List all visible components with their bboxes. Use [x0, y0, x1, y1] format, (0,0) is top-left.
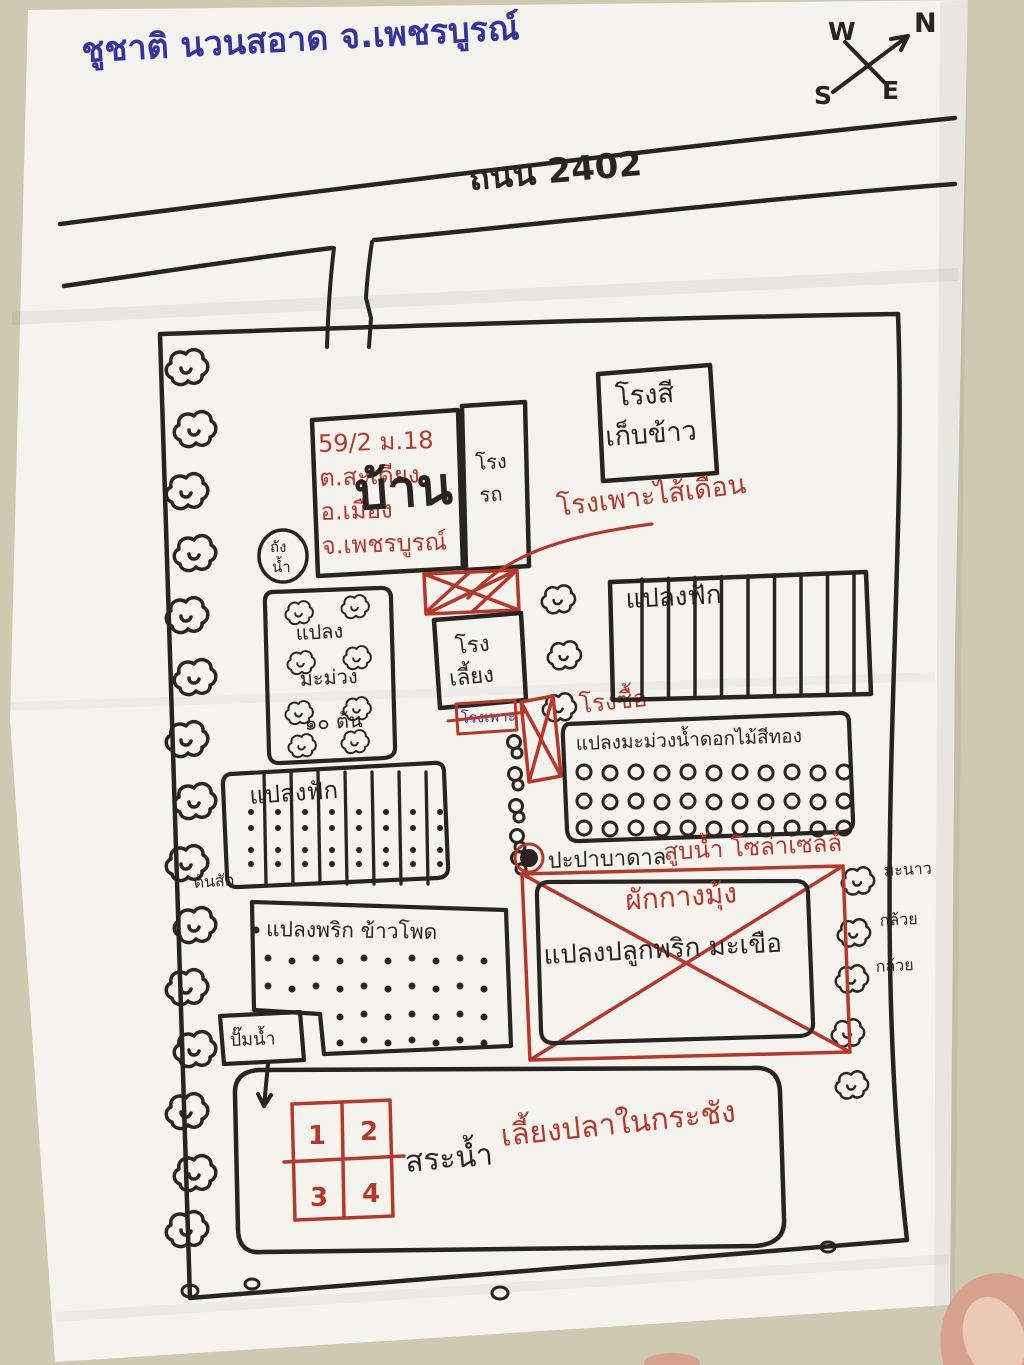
crop-dot: [385, 1040, 392, 1047]
garage-label-line1: โรง: [475, 449, 508, 475]
crop-dot: [383, 809, 389, 815]
crop-dot: [383, 861, 389, 867]
crop-dot: [437, 825, 443, 831]
crop-dot: [265, 955, 272, 962]
crop-dot: [329, 847, 335, 853]
compass-west-label: W: [828, 17, 856, 46]
crop-dot: [289, 986, 296, 993]
crop-dot: [361, 1037, 368, 1044]
crop-dot: [410, 825, 416, 831]
garage-label-line2: รถ: [479, 481, 503, 507]
crop-dot: [302, 825, 308, 831]
crop-dot: [337, 986, 344, 993]
crop-row-line: [426, 772, 428, 884]
crop-dot: [481, 1014, 488, 1021]
crop-dot: [410, 809, 416, 815]
livestock-shed-label-line1: โรง: [454, 631, 491, 660]
crop-dot: [265, 983, 272, 990]
crop-dot: [356, 847, 362, 853]
compass-east-label: E: [882, 76, 899, 105]
crop-dot: [433, 1014, 440, 1021]
house-address-line: 59/2 ม.18: [318, 426, 434, 458]
rice-mill-label-line1: โรงสี: [614, 378, 675, 413]
crop-dot: [457, 955, 464, 962]
crop-dot: [248, 847, 254, 853]
crop-dot: [329, 861, 335, 867]
crop-dot: [457, 1011, 464, 1018]
crop-dot: [313, 955, 320, 962]
crop-dot: [409, 1011, 416, 1018]
crop-dot: [275, 847, 281, 853]
crop-dot: [409, 983, 416, 990]
crop-dot: [361, 1011, 368, 1018]
chili-corn-label: แปลงพริก ข้าวโพด: [266, 917, 438, 944]
well-dot: [520, 849, 538, 867]
crop-dot: [356, 861, 362, 867]
crop-dot: [481, 1040, 488, 1047]
crop-row-line: [345, 772, 347, 884]
crop-dot: [410, 847, 416, 853]
right-orchard-label-2: กล้วย: [879, 909, 918, 930]
crop-dot: [329, 825, 335, 831]
crop-dot: [481, 958, 488, 965]
crop-dot: [253, 927, 260, 934]
pumpkin-plot-right-label: แปลงฟัก: [625, 580, 722, 615]
crop-dot: [457, 1037, 464, 1044]
cage-number-1: 1: [308, 1121, 326, 1151]
teak-row-label: ต้นสัก: [193, 870, 235, 892]
crop-dot: [302, 847, 308, 853]
crop-dot: [437, 861, 443, 867]
mango-ten-label-line2: มะม่วง: [299, 664, 358, 691]
crop-dot: [383, 825, 389, 831]
crop-dot: [329, 809, 335, 815]
crop-dot: [385, 958, 392, 965]
crop-dot: [481, 986, 488, 993]
cage-number-4: 4: [362, 1179, 380, 1209]
right-orchard-label-3: กล้วย: [875, 955, 914, 976]
crop-dot: [275, 825, 281, 831]
cage-number-3: 3: [310, 1183, 328, 1213]
crop-dot: [337, 1040, 344, 1047]
crop-dot: [313, 983, 320, 990]
crop-dot: [433, 986, 440, 993]
crop-dot: [289, 958, 296, 965]
water-tank-label-line1: ถัง: [270, 538, 286, 556]
house-label: บ้าน: [353, 456, 455, 523]
crop-row-line: [399, 772, 401, 884]
crop-dot: [385, 986, 392, 993]
crop-dot: [337, 958, 344, 965]
right-orchard-label-1: มะนาว: [883, 859, 932, 880]
crop-dot: [275, 809, 281, 815]
crop-dot: [433, 1040, 440, 1047]
photo-of-hand-drawn-map: ชูชาติ นวนสอาด จ.เพชรบูรณ์ N W S E ถนน 2…: [0, 0, 1024, 1365]
crop-dot: [248, 861, 254, 867]
crop-dot: [383, 847, 389, 853]
crop-dot: [302, 861, 308, 867]
crop-dot: [409, 1037, 416, 1044]
crop-row-line: [372, 772, 374, 884]
crop-dot: [302, 809, 308, 815]
crop-dot: [437, 847, 443, 853]
crop-dot: [385, 1014, 392, 1021]
crop-dot: [337, 1014, 344, 1021]
water-tank-label-line2: น้ำ: [272, 556, 291, 576]
crop-dot: [361, 955, 368, 962]
crop-dot: [356, 809, 362, 815]
crop-dot: [356, 825, 362, 831]
compass-north-label: N: [914, 8, 937, 39]
crop-dot: [361, 983, 368, 990]
compass-south-label: S: [814, 81, 832, 110]
crop-dot: [437, 809, 443, 815]
mango-ten-label-line3: ๑๐ ต้น: [304, 708, 363, 735]
mango-ten-label-line1: แปลง: [295, 619, 344, 645]
crop-dot: [410, 861, 416, 867]
house-address-line: จ.เพชรบูรณ์: [321, 528, 447, 561]
crop-dot: [433, 958, 440, 965]
crop-dot: [248, 825, 254, 831]
hand-drawn-farm-map: ชูชาติ นวนสอาด จ.เพชรบูรณ์ N W S E ถนน 2…: [0, 0, 1024, 1365]
crop-dot: [409, 955, 416, 962]
crop-dot: [457, 983, 464, 990]
crop-dot: [275, 861, 281, 867]
cage-number-2: 2: [360, 1117, 378, 1147]
